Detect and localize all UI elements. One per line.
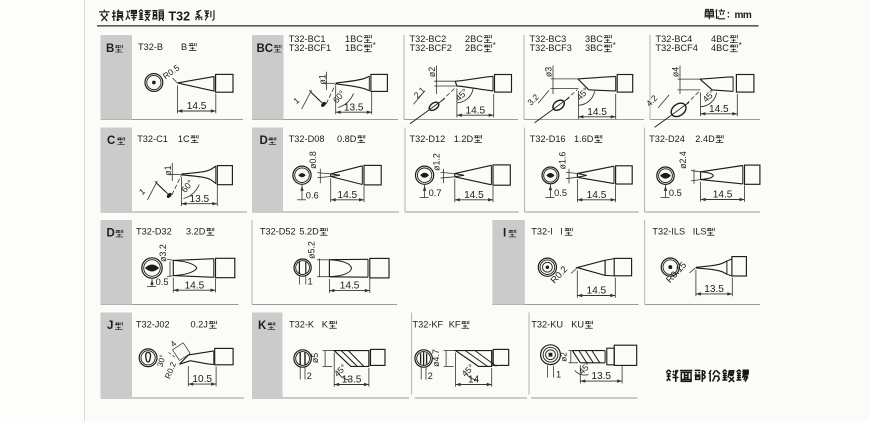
svg-text:ø1: ø1 [317, 74, 327, 84]
svg-text:T32-BCF4: T32-BCF4 [656, 43, 698, 53]
svg-text:13.5: 13.5 [591, 371, 611, 382]
svg-text:14.5: 14.5 [586, 286, 606, 297]
svg-text:ø3.2: ø3.2 [158, 244, 168, 262]
svg-text:D: D [107, 228, 115, 240]
svg-text:BC: BC [257, 43, 274, 55]
svg-text:13.5: 13.5 [342, 375, 362, 386]
svg-text:14.5: 14.5 [340, 281, 360, 292]
svg-text:ø1: ø1 [163, 165, 173, 175]
svg-text:K: K [258, 320, 267, 332]
svg-text:0.6: 0.6 [306, 190, 319, 200]
svg-text:2: 2 [307, 371, 312, 381]
svg-text:T32-ILS: T32-ILS [652, 227, 685, 237]
svg-text:T32: T32 [169, 10, 191, 24]
svg-text:T32-C1: T32-C1 [137, 134, 168, 144]
svg-text:14.5: 14.5 [338, 190, 358, 201]
svg-text::: : [727, 10, 730, 21]
svg-text:ø5.2: ø5.2 [307, 241, 317, 259]
svg-text:KU: KU [571, 320, 584, 330]
svg-text:T32-D32: T32-D32 [136, 227, 172, 237]
svg-text:14.5: 14.5 [587, 107, 607, 118]
svg-text:C: C [107, 135, 115, 147]
svg-text:0.5: 0.5 [156, 277, 169, 287]
svg-text:T32-D12: T32-D12 [410, 134, 446, 144]
svg-text:0.7: 0.7 [429, 188, 442, 198]
svg-text:T32-K: T32-K [289, 320, 315, 330]
svg-text:0.5: 0.5 [554, 188, 567, 198]
svg-text:ø2.4: ø2.4 [678, 151, 688, 169]
svg-text:0.2J: 0.2J [191, 320, 208, 330]
svg-text:I: I [560, 227, 563, 237]
svg-text:2: 2 [428, 371, 433, 381]
svg-text:*: * [739, 41, 742, 50]
svg-text:KF: KF [449, 320, 461, 330]
svg-text:D: D [260, 135, 268, 147]
svg-text:T32-BCF1: T32-BCF1 [289, 43, 331, 53]
svg-text:14: 14 [468, 375, 480, 386]
svg-text:T32-D24: T32-D24 [649, 134, 685, 144]
svg-text:ø2: ø2 [427, 67, 437, 77]
svg-text:T32-D08: T32-D08 [289, 134, 325, 144]
svg-text:13.5: 13.5 [344, 102, 364, 113]
svg-text:ø1.6: ø1.6 [558, 152, 568, 170]
svg-text:T32-I: T32-I [531, 227, 552, 237]
svg-text:2BC: 2BC [465, 43, 483, 53]
svg-text:ø1.2: ø1.2 [432, 153, 442, 171]
svg-text:5.2D: 5.2D [299, 227, 319, 237]
svg-text:13.5: 13.5 [704, 284, 724, 295]
svg-text:0.8D: 0.8D [337, 134, 357, 144]
svg-text:ø0.8: ø0.8 [308, 151, 318, 169]
svg-text:14.5: 14.5 [187, 101, 207, 112]
svg-text:ø5: ø5 [310, 353, 320, 363]
svg-text:*: * [493, 41, 496, 50]
svg-text:1.2D: 1.2D [454, 134, 474, 144]
svg-text:T32-BCF3: T32-BCF3 [530, 43, 572, 53]
svg-text:T32-J02: T32-J02 [136, 320, 170, 330]
svg-text:14.5: 14.5 [464, 190, 484, 201]
svg-text:ø2: ø2 [560, 352, 569, 362]
svg-text:ø3: ø3 [544, 67, 554, 77]
svg-text:J: J [107, 320, 113, 332]
svg-text:B: B [106, 43, 114, 55]
svg-text:ø4: ø4 [671, 67, 681, 77]
svg-text:T32-D16: T32-D16 [530, 134, 566, 144]
svg-text:1BC: 1BC [345, 43, 363, 53]
svg-text:14.5: 14.5 [185, 280, 205, 291]
svg-text:13.5: 13.5 [190, 194, 210, 205]
svg-text:10.5: 10.5 [192, 374, 212, 385]
svg-text:T32-D52: T32-D52 [260, 227, 296, 237]
svg-text:4BC: 4BC [711, 43, 729, 53]
svg-text:ø4.7: ø4.7 [431, 349, 441, 367]
svg-text:T32-B: T32-B [138, 42, 163, 52]
svg-text:1C: 1C [178, 134, 190, 144]
svg-text:T32-KU: T32-KU [531, 320, 563, 330]
svg-text:1: 1 [556, 370, 561, 380]
svg-text:3BC: 3BC [585, 43, 603, 53]
svg-text:K: K [322, 320, 329, 330]
svg-text:ILS: ILS [693, 227, 707, 237]
svg-text:1: 1 [308, 277, 313, 287]
svg-text:mm: mm [735, 10, 752, 21]
svg-text:14.5: 14.5 [465, 105, 485, 116]
svg-text:14.5: 14.5 [587, 190, 607, 201]
svg-text:3.2D: 3.2D [186, 227, 206, 237]
svg-text:B: B [181, 42, 187, 52]
svg-text:14.5: 14.5 [709, 104, 729, 115]
svg-text:0.5: 0.5 [669, 188, 682, 198]
svg-text:*: * [613, 41, 616, 50]
svg-text:14.5: 14.5 [713, 190, 733, 201]
svg-text:1.6D: 1.6D [574, 134, 594, 144]
svg-text:I: I [503, 228, 506, 240]
svg-text:T32-KF: T32-KF [413, 320, 444, 330]
svg-text:*: * [373, 41, 376, 50]
svg-text:T32-BCF2: T32-BCF2 [410, 43, 452, 53]
svg-text:2.4D: 2.4D [695, 134, 715, 144]
